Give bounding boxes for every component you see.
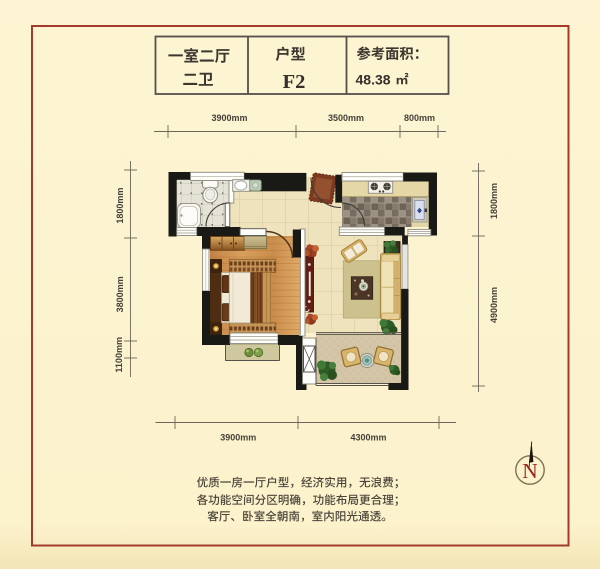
svg-text:3900mm: 3900mm xyxy=(220,433,256,443)
svg-text:N: N xyxy=(522,459,538,483)
svg-text:1100mm: 1100mm xyxy=(114,337,124,373)
svg-text:4300mm: 4300mm xyxy=(350,433,386,443)
svg-text:1800mm: 1800mm xyxy=(115,188,125,224)
svg-text:800mm: 800mm xyxy=(404,113,435,123)
svg-text:48.38: 48.38 xyxy=(356,72,391,88)
svg-text:F2: F2 xyxy=(283,71,306,93)
svg-text:3500mm: 3500mm xyxy=(328,113,364,123)
svg-text:4900mm: 4900mm xyxy=(489,287,499,323)
svg-text:3800mm: 3800mm xyxy=(115,276,125,312)
svg-text:1800mm: 1800mm xyxy=(489,183,499,219)
svg-text:3900mm: 3900mm xyxy=(211,113,247,123)
